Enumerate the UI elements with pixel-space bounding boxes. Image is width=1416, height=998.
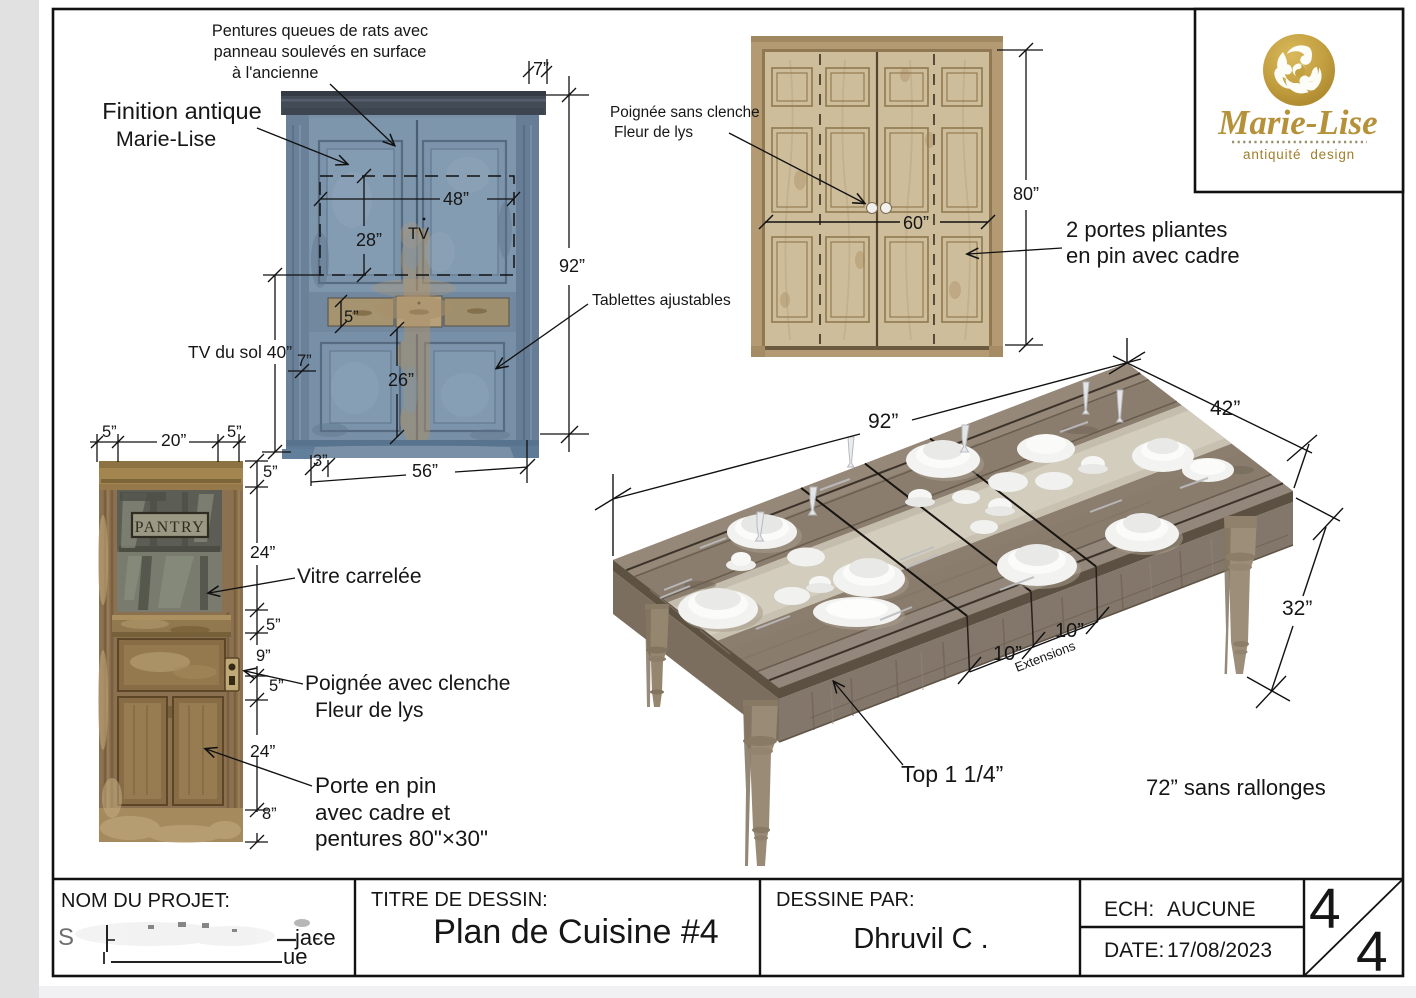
svg-text:TITRE DE DESSIN:: TITRE DE DESSIN: (371, 889, 548, 911)
svg-text:5”: 5” (102, 423, 117, 441)
svg-text:24”: 24” (250, 741, 275, 761)
svg-text:Marie-Lise: Marie-Lise (1217, 103, 1377, 142)
svg-text:TV du sol 40”: TV du sol 40” (188, 342, 292, 362)
svg-text:5”: 5” (266, 616, 281, 634)
svg-text:24”: 24” (250, 542, 275, 562)
svg-text:DATE:: DATE: (1104, 939, 1164, 962)
svg-text:5”: 5” (263, 463, 278, 481)
svg-text:ECH:: ECH: (1104, 898, 1154, 921)
svg-text:Porte en pin: Porte en pin (315, 773, 436, 798)
svg-text:PANTRY: PANTRY (135, 519, 206, 536)
svg-text:5”: 5” (344, 308, 359, 326)
svg-text:92”: 92” (868, 410, 898, 433)
svg-text:Finition antique: Finition antique (102, 98, 261, 124)
svg-text:5”: 5” (227, 423, 242, 441)
svg-text:AUCUNE: AUCUNE (1167, 898, 1256, 921)
svg-text:8”: 8” (262, 805, 277, 823)
svg-text:32”: 32” (1282, 597, 1312, 620)
svg-text:pentures 80"×30": pentures 80"×30" (315, 826, 488, 851)
svg-text:Fleur de lys: Fleur de lys (315, 699, 424, 722)
svg-text:9”: 9” (256, 647, 271, 665)
svg-text:Fleur de lys: Fleur de lys (614, 124, 693, 141)
svg-text:Dhruvil C .: Dhruvil C . (853, 923, 988, 955)
svg-text:TV: TV (408, 225, 429, 243)
svg-text:20”: 20” (161, 430, 186, 450)
svg-text:Tablettes ajustables: Tablettes ajustables (592, 292, 731, 309)
svg-text:Vitre carrelée: Vitre carrelée (297, 565, 422, 588)
svg-text:Top 1 1/4”: Top 1 1/4” (901, 761, 1003, 787)
svg-text:3”: 3” (313, 452, 328, 470)
svg-text:26”: 26” (388, 370, 414, 390)
svg-text:en pin avec cadre: en pin avec cadre (1066, 243, 1240, 268)
svg-text:ue: ue (283, 944, 307, 969)
svg-text:92”: 92” (559, 256, 585, 276)
svg-text:S: S (58, 924, 74, 951)
svg-text:56”: 56” (412, 461, 438, 481)
svg-text:7”: 7” (533, 59, 549, 79)
svg-text:7”: 7” (297, 352, 312, 370)
svg-text:panneau soulevés en surface: panneau soulevés en surface (214, 43, 427, 61)
svg-text:Poignée sans clenche: Poignée sans clenche (610, 104, 760, 121)
svg-text:avec cadre et: avec cadre et (315, 800, 451, 825)
svg-text:Poignée avec clenche: Poignée avec clenche (305, 672, 510, 695)
svg-text:80”: 80” (1013, 184, 1039, 204)
svg-text:Plan de Cuisine #4: Plan de Cuisine #4 (433, 913, 718, 951)
svg-text:à l'ancienne: à l'ancienne (232, 64, 318, 82)
svg-text:Marie-Lise: Marie-Lise (116, 127, 216, 151)
svg-text:60”: 60” (903, 213, 929, 233)
svg-text:42”: 42” (1210, 397, 1240, 420)
svg-text:2 portes pliantes: 2 portes pliantes (1066, 217, 1227, 242)
svg-text:DESSINE PAR:: DESSINE PAR: (776, 889, 915, 911)
svg-text:Pentures queues de rats avec: Pentures queues de rats avec (212, 22, 428, 40)
svg-text:4: 4 (1356, 920, 1388, 984)
svg-text:48”: 48” (443, 189, 469, 209)
svg-text:antiquité design: antiquité design (1243, 147, 1355, 162)
svg-text:17/08/2023: 17/08/2023 (1167, 939, 1272, 962)
svg-text:72” sans rallonges: 72” sans rallonges (1146, 775, 1326, 800)
svg-text:28”: 28” (356, 230, 382, 250)
svg-text:NOM DU PROJET:: NOM DU PROJET: (61, 890, 230, 912)
svg-text:4: 4 (1309, 877, 1341, 941)
